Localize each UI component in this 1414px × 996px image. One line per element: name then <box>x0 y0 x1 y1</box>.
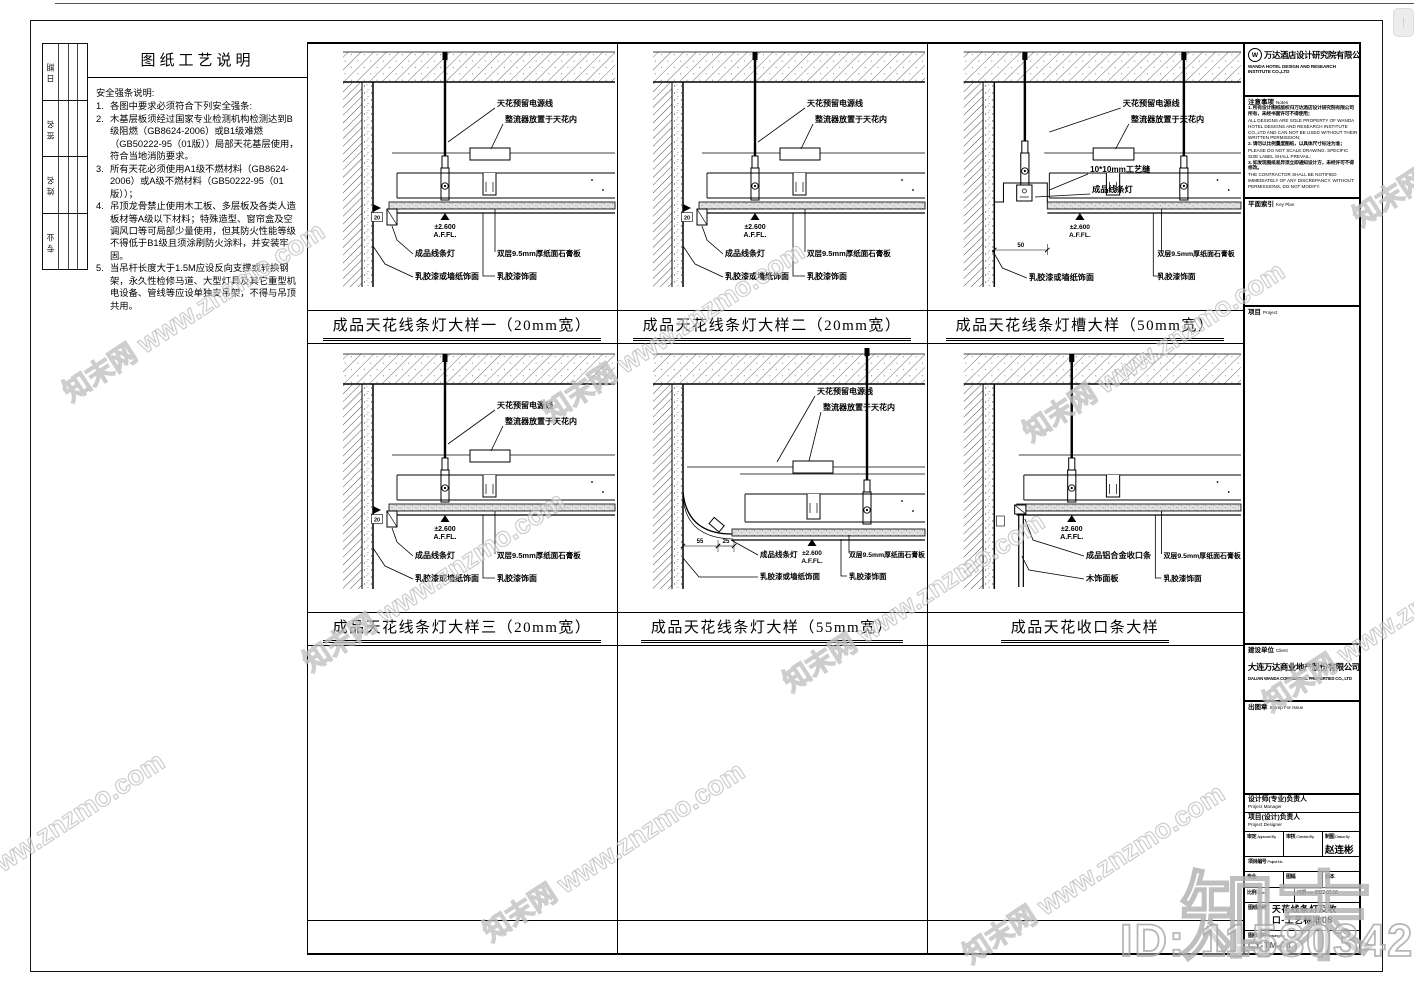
svg-text:±2.600: ±2.600 <box>744 224 765 231</box>
client-name-cn: 大连万达商业地产股份有限公司 <box>1248 661 1358 673</box>
tb-note-en: THE CONTRACTOR SHALL BE NOTIFIED IMMEDIA… <box>1248 172 1358 189</box>
process-notes-panel: 图纸工艺说明 安全强条说明:1.各图中要求必须符合下列安全强条:2.木基层板须经… <box>88 42 307 955</box>
svg-text:A.F.FL.: A.F.FL. <box>434 232 457 239</box>
signoff-empty-cell <box>68 101 78 157</box>
svg-text:25: 25 <box>723 539 730 545</box>
drawn-by-name: 赵连彬 <box>1325 842 1359 856</box>
title-block: W 万达酒店设计研究院有限公司 WANDA HOTEL DESIGN AND R… <box>1243 42 1361 955</box>
svg-text:天花预留电源线: 天花预留电源线 <box>807 98 863 108</box>
detail-drawing-2: 20±2.600A.F.FL.天花预留电源线整流器放置于天花内成品线条灯乳胶漆或… <box>617 42 927 310</box>
projno-label-en: Project No. <box>1267 859 1282 864</box>
svg-text:乳胶漆饰面: 乳胶漆饰面 <box>849 571 887 581</box>
approved-label-cn: 审定 <box>1247 834 1256 840</box>
scrollbar-thumb[interactable]: | <box>1393 8 1414 37</box>
projno-label-cn: 项目编号 <box>1248 859 1266 865</box>
svg-text:20: 20 <box>374 216 380 222</box>
company-name-en: WANDA HOTEL DESIGN AND RESEARCH INSTITUT… <box>1248 64 1358 74</box>
svg-text:乳胶漆或墙纸饰面: 乳胶漆或墙纸饰面 <box>760 571 820 581</box>
svg-text:乳胶漆或墙纸饰面: 乳胶漆或墙纸饰面 <box>1029 272 1094 282</box>
svg-text:双层9.5mm厚纸面石膏板: 双层9.5mm厚纸面石膏板 <box>1163 551 1240 560</box>
signoff-empty-cell <box>68 44 78 100</box>
company-section: W 万达酒店设计研究院有限公司 WANDA HOTEL DESIGN AND R… <box>1245 42 1361 97</box>
svg-text:乳胶漆饰面: 乳胶漆饰面 <box>1157 271 1196 281</box>
note-item: 4.吊顶龙骨禁止使用木工板、多层板及各类人造板材等A级以下材料；特殊造型、窗帘盒… <box>96 200 299 262</box>
svg-text:双层9.5mm厚纸面石膏板: 双层9.5mm厚纸面石膏板 <box>807 248 891 258</box>
stamp-label-cn: 出图章 <box>1248 704 1268 711</box>
svg-text:±2.600: ±2.600 <box>802 550 822 557</box>
date-label-cn: 日期 <box>1297 890 1306 896</box>
keyplan-label-en: Key Plan <box>1276 202 1294 207</box>
svg-text:乳胶漆饰面: 乳胶漆饰面 <box>807 271 847 281</box>
detail-title-2: 成品天花线条灯大样二（20mm宽） <box>617 310 927 344</box>
signoff-row-label: 姓名 <box>43 157 58 213</box>
drawing-no-value: CY-TM-08 <box>1248 940 1358 950</box>
svg-text:A.F.FL.: A.F.FL. <box>1060 534 1083 541</box>
svg-text:天花预留电源线: 天花预留电源线 <box>817 386 873 396</box>
detail-title-6: 成品天花收口条大样 <box>927 612 1243 646</box>
svg-text:A.F.FL.: A.F.FL. <box>434 534 457 541</box>
project-label-en: Project <box>1263 310 1277 315</box>
notes-subtitle: 安全强条说明: <box>96 87 299 99</box>
svg-text:双层9.5mm厚纸面石膏板: 双层9.5mm厚纸面石膏板 <box>497 550 581 560</box>
client-label-en: Client <box>1276 648 1288 653</box>
svg-text:55: 55 <box>697 539 704 545</box>
svg-text:乳胶漆或墙纸饰面: 乳胶漆或墙纸饰面 <box>415 271 479 281</box>
detail-title-1: 成品天花线条灯大样一（20mm宽） <box>307 310 617 344</box>
keyplan-section: 平面索引Key Plan <box>1245 199 1361 307</box>
svg-text:乳胶漆或墙纸饰面: 乳胶漆或墙纸饰面 <box>415 573 479 583</box>
drawing-no-label-en: Drawing No. <box>1267 933 1285 938</box>
signoff-empty-cell <box>77 101 87 157</box>
svg-text:A.F.FL.: A.F.FL. <box>744 232 767 239</box>
notes-label-en: Notes <box>1276 100 1288 105</box>
size-cell: 图幅 <box>1283 872 1322 887</box>
company-name-cn: 万达酒店设计研究院有限公司 <box>1264 49 1361 61</box>
detail-title-text-3: 成品天花线条灯槽大样（50mm宽） <box>946 314 1225 341</box>
svg-text:成品线条灯: 成品线条灯 <box>415 550 455 560</box>
drawing-no-label-cn: 图纸编号 <box>1248 933 1266 939</box>
signoff-empty-cell <box>58 157 68 213</box>
note-item: 3.所有天花必须使用A1级不燃材料（GB8624-2006）或A级不燃材料（GB… <box>96 163 299 200</box>
approved-label-en: Approved By <box>1257 834 1276 839</box>
keyplan-label-cn: 平面索引 <box>1248 201 1274 208</box>
notes-section: 注意事项Notes 1. 所有设计图纸版权归万达酒店设计研究院有限公司所有，未经… <box>1245 97 1361 199</box>
approved-cell: 审定 Approved By <box>1245 832 1283 856</box>
svg-text:成品线条灯: 成品线条灯 <box>1092 184 1133 194</box>
tb-note-cn: 3. 如发现图纸差异须立即通知设计方，未经许可不得修改。 <box>1248 161 1358 173</box>
svg-text:天花预留电源线: 天花预留电源线 <box>497 98 553 108</box>
detail-title-text-6: 成品天花收口条大样 <box>1001 616 1170 643</box>
signoff-empty-cell <box>68 157 78 213</box>
svg-text:双层9.5mm厚纸面石膏板: 双层9.5mm厚纸面石膏板 <box>497 248 581 258</box>
signoff-row: 专业 <box>43 214 87 270</box>
signoff-empty-cell <box>58 214 68 270</box>
signoff-empty-cell <box>58 44 68 100</box>
meta-row-1: 专业 图幅 版本 <box>1245 872 1361 888</box>
detail-title-text-5: 成品天花线条灯大样（55mm宽） <box>641 616 903 643</box>
detail-title-3: 成品天花线条灯槽大样（50mm宽） <box>927 310 1243 344</box>
svg-text:20: 20 <box>374 518 380 524</box>
drawn-label-cn: 制图 <box>1325 834 1334 840</box>
svg-text:乳胶漆饰面: 乳胶漆饰面 <box>497 271 537 281</box>
scale-cell: 比例 Scale <box>1245 888 1294 902</box>
svg-text:成品线条灯: 成品线条灯 <box>760 549 798 559</box>
svg-text:A.F.FL.: A.F.FL. <box>801 558 822 565</box>
svg-text:±2.600: ±2.600 <box>1070 224 1091 231</box>
svg-text:成品线条灯: 成品线条灯 <box>725 248 765 258</box>
note-item: 5.当吊杆长度大于1.5M应设反向支撑或转换钢架，永久性检修马道、大型灯具及其它… <box>96 262 299 312</box>
project-no-row: 项目编号 Project No. <box>1245 857 1361 872</box>
drawn-label-en: Drawn By <box>1335 834 1349 839</box>
signoff-row-label: 专业 <box>43 214 58 270</box>
page-top-rule <box>55 3 1414 4</box>
signoff-row: 签名 <box>43 101 87 158</box>
detail-title-5: 成品天花线条灯大样（55mm宽） <box>617 612 927 646</box>
note-item: 2.木基层板须经过国家专业检测机构检测达到B级阻燃（GB8624-2006）或B… <box>96 113 299 163</box>
client-section: 建设单位Client 大连万达商业地产股份有限公司 DALIAN WANDA C… <box>1245 645 1361 702</box>
meta-row-2: 比例 Scale 日期 Date 2022.02.16 <box>1245 888 1361 903</box>
signoff-empty-cell <box>77 214 87 270</box>
signoff-row: 姓名 <box>43 157 87 214</box>
signoff-empty-cell <box>68 214 78 270</box>
svg-text:A.F.FL.: A.F.FL. <box>1069 232 1091 239</box>
drawing-sheet-page: | 日期签名姓名专业 图纸工艺说明 安全强条说明:1.各图中要求必须符合下列安全… <box>0 0 1414 996</box>
detail-drawing-6: ±2.600A.F.FL.成品铝合金收口条木饰面板双层9.5mm厚纸面石膏板乳胶… <box>927 344 1243 612</box>
checked-label-cn: 审核 <box>1286 834 1295 840</box>
tb-note-en: ALL DESIGNS ARE SOLE PROPERTY OF WANDA H… <box>1248 118 1358 141</box>
scale-label-cn: 比例 <box>1247 890 1256 896</box>
svg-text:整流器放置于天花内: 整流器放置于天花内 <box>504 416 577 426</box>
svg-text:10*10mm工艺缝: 10*10mm工艺缝 <box>1090 164 1150 174</box>
checked-cell: 审核 Checked By <box>1283 832 1322 856</box>
stamp-section: 出图章Stamp For Issue <box>1245 702 1361 795</box>
signers-row: 审定 Approved By 审核 Checked By 制图 Drawn By… <box>1245 832 1361 857</box>
svg-text:成品线条灯: 成品线条灯 <box>415 248 455 258</box>
notes-list: 1. 所有设计图纸版权归万达酒店设计研究院有限公司所有，未经书面许可不得使用；A… <box>1248 106 1358 190</box>
signoff-empty-cell <box>77 44 87 100</box>
svg-text:±2.600: ±2.600 <box>434 224 455 231</box>
detail-drawing-4: 20±2.600A.F.FL.天花预留电源线整流器放置于天花内成品线条灯乳胶漆或… <box>307 344 617 612</box>
wanda-logo-icon: W <box>1248 48 1262 62</box>
detail-title-4: 成品天花线条灯大样三（20mm宽） <box>307 612 617 646</box>
detail-drawing-1: 20±2.600A.F.FL.天花预留电源线整流器放置于天花内成品线条灯乳胶漆或… <box>307 42 617 310</box>
discipline-cell: 专业 <box>1245 872 1283 887</box>
signoff-row-label: 日期 <box>43 44 58 100</box>
svg-text:成品铝合金收口条: 成品铝合金收口条 <box>1086 550 1152 560</box>
pd-label-en: Project Designer <box>1248 822 1358 827</box>
svg-text:整流器放置于天花内: 整流器放置于天花内 <box>814 114 887 124</box>
issue-cell: 版本 <box>1322 872 1361 887</box>
svg-text:乳胶漆饰面: 乳胶漆饰面 <box>1163 573 1202 583</box>
svg-text:整流器放置于天花内: 整流器放置于天花内 <box>1131 114 1204 124</box>
detail-title-text-4: 成品天花线条灯大样三（20mm宽） <box>323 616 602 643</box>
svg-text:整流器放置于天花内: 整流器放置于天花内 <box>504 114 577 124</box>
tb-note-en: PLEASE DO NOT SCALE DRAWING. SPECIFIC SI… <box>1248 148 1358 159</box>
svg-text:天花预留电源线: 天花预留电源线 <box>1123 98 1180 108</box>
project-manager-row: 设计师(专业)负责人 Project Manager <box>1245 795 1361 813</box>
pm-label-en: Project Manager <box>1248 804 1358 809</box>
date-cell: 日期 Date 2022.02.16 <box>1294 888 1361 902</box>
detail-drawing-3: 50±2.600A.F.FL.天花预留电源线整流器放置于天花内10*10mm工艺… <box>927 42 1243 310</box>
signoff-row-label: 签名 <box>43 101 58 157</box>
date-value: 2022.02.16 <box>1315 890 1338 896</box>
svg-text:天花预留电源线: 天花预留电源线 <box>497 400 553 410</box>
signoff-empty-cell <box>77 157 87 213</box>
drawn-cell: 制图 Drawn By 赵连彬 <box>1322 832 1361 856</box>
client-name-en: DALIAN WANDA COMMERCIAL PROPERTIES CO., … <box>1248 676 1358 681</box>
svg-text:乳胶漆饰面: 乳胶漆饰面 <box>497 573 537 583</box>
svg-text:整流器放置于天花内: 整流器放置于天花内 <box>822 402 895 412</box>
drawing-title-value: 天花线条灯及收 口-工艺标准08 <box>1272 904 1358 929</box>
notes-label-cn: 注意事项 <box>1248 99 1274 106</box>
pd-label-cn: 项目(设计)负责人 <box>1248 814 1358 822</box>
grid-hline-bottom <box>307 920 1243 921</box>
detail-title-text-1: 成品天花线条灯大样一（20mm宽） <box>323 314 602 341</box>
drawing-title-row: 图纸名称 天花线条灯及收 口-工艺标准08 <box>1245 903 1361 931</box>
note-item: 1.各图中要求必须符合下列安全强条: <box>96 100 299 112</box>
svg-text:双层9.5mm厚纸面石膏板: 双层9.5mm厚纸面石膏板 <box>849 550 925 559</box>
svg-text:±2.600: ±2.600 <box>434 526 455 533</box>
checked-label-en: Checked By <box>1296 834 1314 839</box>
svg-text:50: 50 <box>1017 243 1024 249</box>
tb-note-cn: 1. 所有设计图纸版权归万达酒店设计研究院有限公司所有，未经书面许可不得使用； <box>1248 106 1358 118</box>
signoff-empty-cell <box>58 101 68 157</box>
signoff-row: 日期 <box>43 44 87 101</box>
process-notes-title: 图纸工艺说明 <box>88 42 307 78</box>
svg-text:±2.600: ±2.600 <box>1061 526 1083 533</box>
svg-text:20: 20 <box>684 216 690 222</box>
signoff-table: 日期签名姓名专业 <box>42 43 88 270</box>
scale-label-en: Scale <box>1257 890 1265 895</box>
project-section: 项目Project <box>1245 307 1361 645</box>
detail-drawing-5: 5525±2.600A.F.FL.天花预留电源线整流器放置于天花内成品线条灯乳胶… <box>617 344 927 612</box>
client-label-cn: 建设单位 <box>1248 647 1274 654</box>
svg-text:木饰面板: 木饰面板 <box>1085 573 1120 583</box>
drawing-title-label: 图纸名称 <box>1248 904 1272 911</box>
project-designer-row: 项目(设计)负责人 Project Designer <box>1245 813 1361 832</box>
drawing-no-row: 图纸编号 Drawing No. CY-TM-08 <box>1245 931 1361 955</box>
pm-label-cn: 设计师(专业)负责人 <box>1248 796 1358 804</box>
process-notes-body: 安全强条说明:1.各图中要求必须符合下列安全强条:2.木基层板须经过国家专业检测… <box>88 78 307 312</box>
detail-title-text-2: 成品天花线条灯大样二（20mm宽） <box>633 314 912 341</box>
date-label-en: Date <box>1307 890 1314 895</box>
stamp-label-en: Stamp For Issue <box>1270 705 1304 710</box>
svg-text:双层9.5mm厚纸面石膏板: 双层9.5mm厚纸面石膏板 <box>1157 249 1234 258</box>
project-label-cn: 项目 <box>1248 309 1261 316</box>
svg-text:乳胶漆或墙纸饰面: 乳胶漆或墙纸饰面 <box>725 271 789 281</box>
